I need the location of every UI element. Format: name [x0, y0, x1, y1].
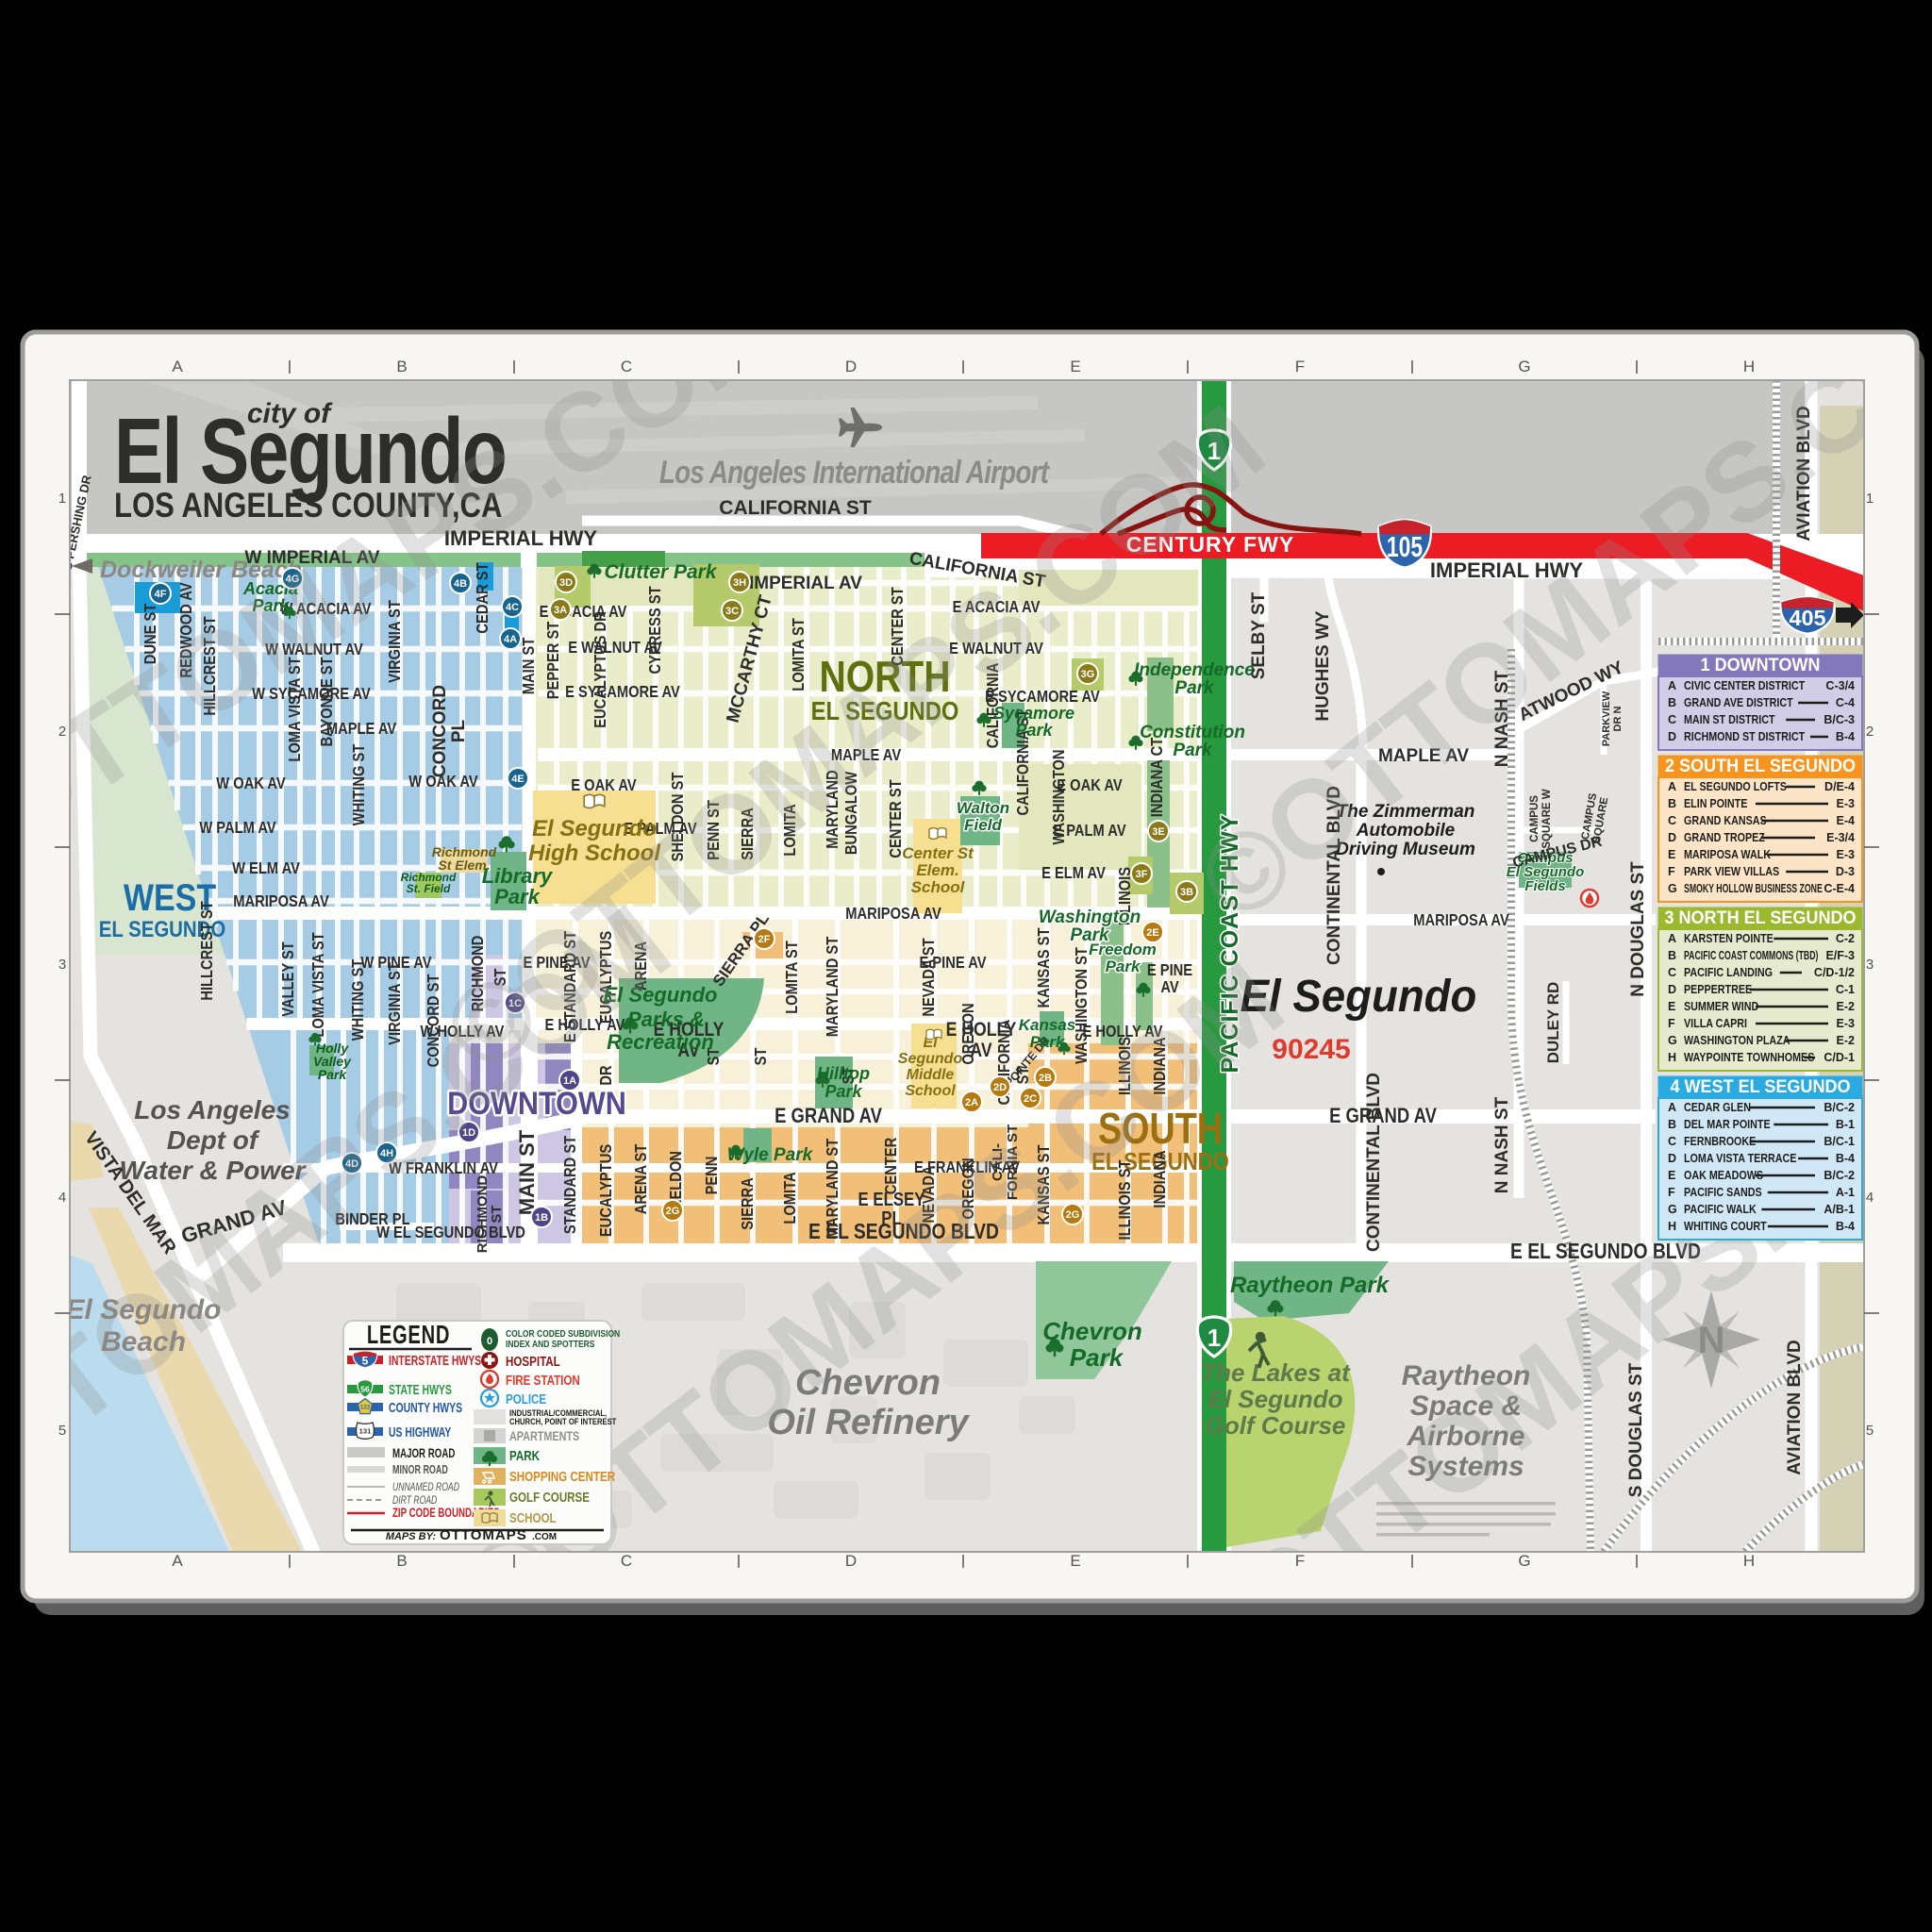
svg-text:POLICE: POLICE	[506, 1391, 546, 1407]
svg-text:ST: ST	[489, 1205, 505, 1223]
svg-text:E-3: E-3	[1837, 848, 1856, 861]
svg-text:3D: 3D	[559, 577, 573, 589]
svg-text:N DOUGLAS ST: N DOUGLAS ST	[1628, 861, 1648, 997]
svg-text:B: B	[1668, 1118, 1676, 1131]
svg-text:B/C-3: B/C-3	[1824, 713, 1855, 726]
svg-text:4E: 4E	[511, 774, 524, 785]
svg-text:56: 56	[360, 1384, 370, 1393]
svg-text:C/D-1: C/D-1	[1824, 1051, 1855, 1064]
svg-text:Park: Park	[824, 1082, 862, 1101]
svg-text:A: A	[172, 358, 183, 375]
svg-text:MINOR ROAD: MINOR ROAD	[392, 1464, 448, 1477]
svg-text:SCHOOL: SCHOOL	[509, 1510, 557, 1526]
svg-text:D/E-4: D/E-4	[1824, 780, 1855, 793]
svg-text:G: G	[1668, 1034, 1677, 1047]
svg-text:E: E	[1668, 848, 1675, 861]
svg-text:PL: PL	[449, 719, 469, 742]
svg-text:Middle: Middle	[907, 1067, 955, 1083]
svg-text:H: H	[1668, 1051, 1676, 1064]
svg-text:0: 0	[487, 1336, 492, 1347]
svg-text:WASHINGTON: WASHINGTON	[1050, 750, 1068, 845]
svg-text:GRAND AVE DISTRICT: GRAND AVE DISTRICT	[1684, 696, 1793, 709]
svg-text:G: G	[1518, 1552, 1530, 1570]
svg-text:4: 4	[58, 1190, 66, 1206]
svg-text:SMOKY HOLLOW BUSINESS ZONE: SMOKY HOLLOW BUSINESS ZONE	[1684, 883, 1823, 896]
svg-text:E-3/4: E-3/4	[1826, 831, 1855, 844]
svg-text:PENN: PENN	[703, 1157, 721, 1195]
svg-text:INTERSTATE HWYS: INTERSTATE HWYS	[389, 1353, 481, 1368]
svg-text:HILLCREST ST: HILLCREST ST	[198, 901, 216, 1000]
svg-text:A: A	[172, 1552, 183, 1570]
svg-text:AVIATION BLVD: AVIATION BLVD	[1785, 1340, 1805, 1475]
svg-text:ELIN POINTE: ELIN POINTE	[1684, 797, 1748, 810]
svg-text:C-3/4: C-3/4	[1825, 679, 1855, 692]
svg-text:4: 4	[1866, 1190, 1874, 1206]
svg-text:GRAND KANSAS: GRAND KANSAS	[1684, 814, 1767, 827]
svg-text:CYPRESS ST: CYPRESS ST	[646, 586, 664, 674]
svg-text:2F: 2F	[758, 934, 771, 945]
svg-text:C: C	[621, 1552, 632, 1570]
svg-text:B-4: B-4	[1836, 1220, 1855, 1233]
svg-text:NEVADA ST: NEVADA ST	[920, 938, 938, 1016]
svg-text:G: G	[1518, 358, 1530, 375]
svg-text:STANDARD ST: STANDARD ST	[561, 1136, 579, 1234]
svg-text:MARYLAND ST: MARYLAND ST	[824, 1139, 841, 1240]
svg-text:D-3: D-3	[1836, 865, 1855, 878]
svg-text:C: C	[1668, 814, 1676, 827]
svg-text:FIRE STATION: FIRE STATION	[506, 1373, 580, 1389]
svg-text:E-3: E-3	[1837, 1017, 1856, 1030]
svg-text:405: 405	[1789, 606, 1825, 630]
svg-text:PACIFIC COAST COMMONS (TBD): PACIFIC COAST COMMONS (TBD)	[1684, 950, 1819, 963]
svg-text:Park: Park	[1106, 958, 1141, 975]
svg-text:G: G	[1668, 1203, 1677, 1216]
svg-text:3: 3	[1866, 957, 1874, 973]
svg-text:PARKVIEW: PARKVIEW	[1601, 691, 1612, 746]
svg-text:Clutter Park: Clutter Park	[604, 561, 717, 583]
svg-text:VALLEY ST: VALLEY ST	[279, 941, 297, 1017]
svg-text:US HIGHWAY: US HIGHWAY	[389, 1424, 452, 1440]
svg-text:Park: Park	[1070, 1343, 1124, 1372]
svg-text:D: D	[1668, 983, 1676, 996]
svg-text:CENTER: CENTER	[882, 1137, 900, 1194]
svg-text:2: 2	[58, 724, 66, 740]
svg-text:GRAND TROPEZ: GRAND TROPEZ	[1684, 831, 1765, 844]
svg-text:WHITING ST: WHITING ST	[350, 744, 368, 826]
svg-text:CAMPUS: CAMPUS	[1529, 795, 1541, 842]
svg-text:D: D	[845, 1552, 857, 1570]
svg-text:5: 5	[58, 1423, 66, 1439]
svg-text:MARIPOSA WALK: MARIPOSA WALK	[1684, 848, 1772, 861]
svg-text:122: 122	[360, 1405, 371, 1411]
svg-text:PACIFIC SANDS: PACIFIC SANDS	[1684, 1186, 1762, 1199]
svg-text:Hilltop: Hilltop	[817, 1064, 870, 1083]
svg-text:A-1: A-1	[1836, 1186, 1855, 1199]
svg-text:WASHINGTON PLAZA: WASHINGTON PLAZA	[1684, 1034, 1790, 1047]
svg-text:VILLA CAPRI: VILLA CAPRI	[1684, 1017, 1747, 1030]
svg-text:HUGHES WY: HUGHES WY	[1313, 610, 1333, 722]
svg-text:E-4: E-4	[1837, 814, 1856, 827]
svg-text:H: H	[1668, 1220, 1676, 1233]
svg-text:B/C-1: B/C-1	[1824, 1135, 1855, 1148]
svg-text:C-1: C-1	[1836, 983, 1855, 996]
svg-text:1B: 1B	[535, 1212, 548, 1224]
svg-text:UNNAMED ROAD: UNNAMED ROAD	[392, 1482, 459, 1494]
svg-text:F: F	[1668, 1186, 1675, 1199]
svg-text:WAYPOINTE TOWNHOMES: WAYPOINTE TOWNHOMES	[1684, 1051, 1815, 1064]
svg-text:E: E	[1070, 358, 1080, 375]
svg-text:A: A	[1668, 932, 1676, 945]
svg-text:LEGEND: LEGEND	[367, 1321, 450, 1350]
svg-text:C-2: C-2	[1836, 932, 1855, 945]
svg-text:STATE HWYS: STATE HWYS	[389, 1382, 452, 1397]
svg-text:B: B	[1668, 949, 1676, 962]
svg-text:E GRAND AV: E GRAND AV	[774, 1106, 882, 1128]
svg-text:PEPPERTREE: PEPPERTREE	[1684, 983, 1752, 996]
svg-text:VIRGINIA ST: VIRGINIA ST	[386, 962, 404, 1045]
svg-text:GOLF COURSE: GOLF COURSE	[509, 1490, 590, 1506]
svg-text:105: 105	[1387, 531, 1423, 563]
svg-text:1 DOWNTOWN: 1 DOWNTOWN	[1701, 655, 1821, 675]
svg-text:Dept of: Dept of	[167, 1125, 260, 1155]
svg-text:H: H	[1743, 358, 1755, 375]
svg-text:DR: DR	[597, 1065, 615, 1086]
svg-text:E SYCAMORE AV: E SYCAMORE AV	[565, 683, 680, 701]
svg-text:CALIFORNIA ST: CALIFORNIA ST	[719, 497, 872, 519]
svg-text:E: E	[1070, 1552, 1080, 1570]
svg-text:CIVIC CENTER DISTRICT: CIVIC CENTER DISTRICT	[1684, 679, 1805, 692]
svg-text:OTTOMAPS: OTTOMAPS	[440, 1527, 527, 1543]
svg-text:G: G	[1668, 882, 1677, 895]
svg-text:CONCORD: CONCORD	[430, 685, 450, 777]
svg-text:E-3: E-3	[1837, 797, 1856, 810]
svg-text:Elem.: Elem.	[916, 861, 958, 879]
svg-text:W PALM AV: W PALM AV	[199, 819, 276, 837]
svg-text:F: F	[1668, 865, 1675, 878]
svg-text:3H: 3H	[733, 577, 746, 589]
svg-text:3A: 3A	[554, 605, 567, 616]
svg-text:APARTMENTS: APARTMENTS	[509, 1429, 579, 1443]
svg-text:MAPLE AV: MAPLE AV	[326, 720, 397, 738]
svg-text:3C: 3C	[725, 606, 739, 617]
svg-text:Park: Park	[1173, 741, 1213, 760]
svg-text:PEPPER ST: PEPPER ST	[544, 622, 562, 700]
svg-text:H: H	[1743, 1552, 1755, 1570]
svg-text:1: 1	[58, 491, 66, 507]
svg-text:Kansas: Kansas	[1019, 1016, 1075, 1034]
svg-text:Walton: Walton	[957, 799, 1009, 817]
svg-text:Park: Park	[1015, 721, 1053, 740]
svg-text:2 SOUTH EL SEGUNDO: 2 SOUTH EL SEGUNDO	[1665, 756, 1856, 776]
svg-text:WASHINGTON ST: WASHINGTON ST	[1073, 947, 1091, 1064]
svg-text:ST: ST	[752, 1047, 770, 1065]
svg-text:INDIANA: INDIANA	[1151, 1150, 1169, 1208]
svg-text:ARENA ST: ARENA ST	[632, 1144, 650, 1215]
svg-text:School: School	[905, 1083, 956, 1099]
svg-text:5: 5	[362, 1355, 369, 1368]
svg-text:OAK MEADOWS: OAK MEADOWS	[1684, 1169, 1763, 1182]
svg-text:D: D	[1668, 730, 1676, 743]
svg-text:El Segundo: El Segundo	[1208, 1385, 1343, 1413]
svg-text:D: D	[1668, 831, 1676, 844]
svg-text:INDEX AND SPOTTERS: INDEX AND SPOTTERS	[506, 1339, 594, 1349]
svg-text:E OAK AV: E OAK AV	[571, 776, 637, 794]
svg-text:.COM: .COM	[532, 1532, 557, 1542]
svg-text:PARK: PARK	[509, 1448, 540, 1464]
svg-text:MARIPOSA AV: MARIPOSA AV	[1413, 911, 1509, 929]
svg-text:E/F-3: E/F-3	[1825, 949, 1855, 962]
svg-text:EUCALYPTUS DR: EUCALYPTUS DR	[591, 611, 609, 728]
svg-text:2: 2	[1866, 724, 1874, 740]
svg-text:C-E-4: C-E-4	[1824, 882, 1855, 895]
svg-text:LOMITA ST: LOMITA ST	[790, 618, 808, 691]
svg-text:FERNBROOKE: FERNBROOKE	[1684, 1135, 1757, 1148]
svg-text:Golf Course: Golf Course	[1206, 1411, 1346, 1440]
svg-text:KANSAS ST: KANSAS ST	[1035, 927, 1053, 1008]
svg-text:COUNTY HWYS: COUNTY HWYS	[389, 1400, 462, 1415]
svg-text:St. Field: St. Field	[407, 882, 451, 895]
svg-text:B-1: B-1	[1836, 1118, 1855, 1131]
svg-text:C: C	[1668, 713, 1676, 726]
svg-text:LOMA VISTA ST: LOMA VISTA ST	[309, 932, 327, 1037]
svg-text:F: F	[1295, 358, 1305, 375]
svg-text:2G: 2G	[666, 1206, 680, 1217]
svg-text:F: F	[1295, 1552, 1305, 1570]
svg-text:4A: 4A	[504, 634, 517, 645]
svg-text:3 NORTH EL SEGUNDO: 3 NORTH EL SEGUNDO	[1664, 908, 1856, 928]
svg-text:B-4: B-4	[1836, 1152, 1855, 1165]
svg-text:Chevron: Chevron	[1042, 1317, 1141, 1345]
svg-text:CONTINENTAL BLVD: CONTINENTAL BLVD	[1364, 1073, 1384, 1252]
svg-text:LOMA VISTA TERRACE: LOMA VISTA TERRACE	[1684, 1152, 1797, 1165]
svg-text:W ELM AV: W ELM AV	[232, 859, 300, 877]
svg-text:3B: 3B	[1180, 887, 1193, 898]
svg-text:CEDAR GLEN: CEDAR GLEN	[1684, 1101, 1751, 1114]
svg-text:PARK VIEW VILLAS: PARK VIEW VILLAS	[1684, 865, 1779, 878]
svg-text:SQUARE W: SQUARE W	[1541, 789, 1553, 848]
svg-text:3: 3	[58, 957, 66, 973]
svg-text:W EL SEGUNDO BLVD: W EL SEGUNDO BLVD	[376, 1224, 525, 1241]
svg-text:SUMMER WIND: SUMMER WIND	[1684, 1000, 1758, 1013]
svg-text:Park: Park	[494, 885, 541, 908]
svg-text:A/B-1: A/B-1	[1824, 1203, 1855, 1216]
svg-text:B: B	[396, 358, 407, 375]
svg-text:N NASH ST: N NASH ST	[1492, 1096, 1512, 1193]
svg-text:Fields: Fields	[1524, 878, 1565, 894]
svg-text:INDIANA CT: INDIANA CT	[1148, 738, 1166, 817]
svg-text:Park: Park	[1174, 678, 1215, 698]
svg-text:Independence: Independence	[1134, 660, 1255, 680]
svg-text:MARIPOSA AV: MARIPOSA AV	[845, 905, 941, 923]
svg-text:EL SEGUNDO LOFTS: EL SEGUNDO LOFTS	[1684, 780, 1787, 793]
svg-text:MAIN ST: MAIN ST	[520, 638, 538, 695]
svg-text:C-4: C-4	[1836, 696, 1855, 709]
svg-text:PACIFIC LANDING: PACIFIC LANDING	[1684, 966, 1773, 979]
svg-text:3E: 3E	[1152, 826, 1164, 838]
svg-text:C/D-1/2: C/D-1/2	[1814, 966, 1855, 979]
svg-text:Center St: Center St	[902, 844, 974, 862]
svg-text:B-4: B-4	[1836, 730, 1855, 743]
svg-text:A: A	[1668, 780, 1676, 793]
svg-text:Segundo: Segundo	[898, 1051, 963, 1067]
svg-text:WHITING COURT: WHITING COURT	[1684, 1220, 1767, 1233]
svg-text:MAIN ST: MAIN ST	[515, 1129, 539, 1215]
svg-text:C: C	[1668, 1135, 1676, 1148]
svg-text:DULEY RD: DULEY RD	[1544, 982, 1562, 1064]
svg-text:D: D	[1668, 1152, 1676, 1165]
svg-text:School: School	[911, 878, 966, 896]
svg-text:LOMITA ST: LOMITA ST	[783, 941, 801, 1014]
svg-text:CHURCH, POINT OF INTEREST: CHURCH, POINT OF INTEREST	[509, 1416, 616, 1426]
svg-text:SHOPPING CENTER: SHOPPING CENTER	[509, 1469, 616, 1485]
svg-text:Sycamore: Sycamore	[993, 704, 1074, 723]
svg-text:E: E	[1668, 1169, 1675, 1182]
svg-text:E-2: E-2	[1837, 1034, 1856, 1047]
svg-text:1: 1	[1207, 1324, 1221, 1352]
svg-text:E IMPERIAL AV: E IMPERIAL AV	[732, 574, 862, 593]
svg-text:2D: 2D	[993, 1082, 1007, 1093]
svg-text:2A: 2A	[965, 1097, 978, 1108]
svg-text:C: C	[621, 358, 632, 375]
svg-text:LOMITA: LOMITA	[781, 1172, 799, 1224]
svg-text:E: E	[1668, 1000, 1675, 1013]
svg-text:Washington: Washington	[1039, 908, 1141, 927]
svg-text:D: D	[845, 358, 857, 375]
svg-text:The Lakes at: The Lakes at	[1201, 1358, 1351, 1387]
svg-text:B/C-2: B/C-2	[1824, 1101, 1855, 1114]
svg-text:A: A	[1668, 679, 1676, 692]
svg-text:MAJOR ROAD: MAJOR ROAD	[392, 1447, 455, 1461]
svg-text:B: B	[396, 1552, 407, 1570]
svg-text:4F: 4F	[155, 589, 167, 600]
svg-text:WHITING ST: WHITING ST	[349, 959, 367, 1041]
svg-text:DEL MAR POINTE: DEL MAR POINTE	[1684, 1118, 1771, 1131]
svg-text:1: 1	[1866, 491, 1874, 507]
svg-text:3G: 3G	[1081, 669, 1095, 680]
svg-text:B: B	[1668, 797, 1676, 810]
svg-text:A: A	[1668, 1101, 1676, 1114]
svg-text:E ELM AV: E ELM AV	[1041, 864, 1106, 882]
svg-text:4 WEST EL SEGUNDO: 4 WEST EL SEGUNDO	[1670, 1076, 1850, 1097]
svg-text:C: C	[1668, 966, 1676, 979]
svg-text:4C: 4C	[506, 602, 519, 613]
svg-text:MAIN ST DISTRICT: MAIN ST DISTRICT	[1684, 713, 1775, 726]
svg-text:KARSTEN POINTE: KARSTEN POINTE	[1684, 932, 1774, 945]
svg-text:RICHMOND ST DISTRICT: RICHMOND ST DISTRICT	[1684, 730, 1805, 743]
svg-text:B: B	[1668, 696, 1676, 709]
svg-text:EUCALYPTUS: EUCALYPTUS	[597, 1144, 615, 1237]
svg-text:Los Angeles: Los Angeles	[134, 1095, 290, 1124]
svg-text:Los Angeles International Airp: Los Angeles International Airport	[659, 454, 1050, 490]
svg-text:Freedom: Freedom	[1089, 941, 1157, 958]
svg-text:DR N: DR N	[1612, 707, 1624, 732]
svg-text:E-2: E-2	[1837, 1000, 1856, 1013]
svg-text:5: 5	[1866, 1423, 1874, 1439]
svg-text:Field: Field	[964, 816, 1002, 834]
svg-text:COLOR CODED SUBDIVISION: COLOR CODED SUBDIVISION	[506, 1328, 620, 1339]
svg-text:Constitution: Constitution	[1140, 723, 1245, 742]
svg-text:MARIPOSA AV: MARIPOSA AV	[233, 892, 329, 910]
svg-text:2E: 2E	[1146, 927, 1158, 939]
svg-text:B/C-2: B/C-2	[1824, 1169, 1855, 1182]
svg-text:MARYLAND ST: MARYLAND ST	[824, 937, 841, 1038]
svg-text:F: F	[1668, 1017, 1675, 1030]
svg-text:MAPS BY:: MAPS BY:	[386, 1531, 437, 1542]
svg-text:3F: 3F	[1136, 869, 1148, 880]
svg-text:Wyle Park: Wyle Park	[727, 1145, 814, 1165]
svg-text:W OAK AV: W OAK AV	[216, 774, 286, 792]
svg-text:HOSPITAL: HOSPITAL	[506, 1354, 560, 1370]
svg-text:Raytheon Park: Raytheon Park	[1230, 1273, 1391, 1298]
svg-text:131: 131	[359, 1427, 372, 1436]
svg-text:PACIFIC WALK: PACIFIC WALK	[1684, 1203, 1757, 1216]
svg-text:Park: Park	[318, 1067, 348, 1082]
svg-text:SIERRA: SIERRA	[739, 1177, 757, 1230]
svg-text:SELBY ST: SELBY ST	[1249, 591, 1269, 679]
